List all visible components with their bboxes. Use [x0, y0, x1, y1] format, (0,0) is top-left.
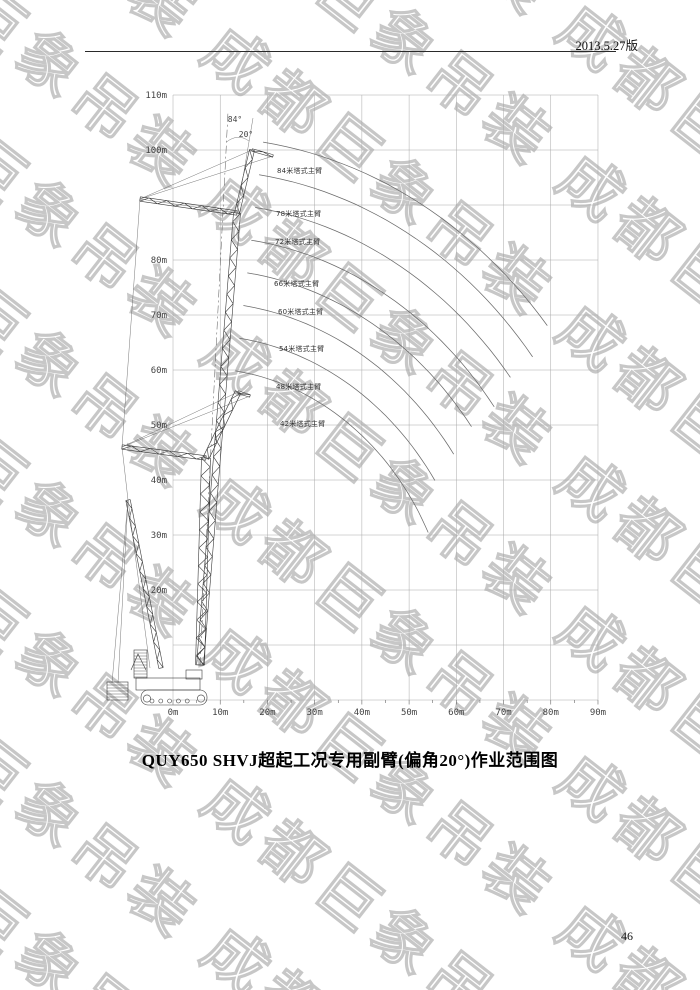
y-axis-tick-label: 80m [151, 256, 167, 266]
crane-drawing [107, 112, 273, 705]
y-axis-tick-label: 40m [151, 476, 167, 486]
track-sprocket [143, 695, 150, 702]
curve-label: 66米塔式主臂 [274, 279, 319, 288]
x-axis-tick-label: 50m [401, 708, 417, 718]
curve-labels: 84米塔式主臂78米塔式主臂72米塔式主臂66米塔式主臂60米塔式主臂54米塔式… [274, 166, 325, 428]
capacity-curve [239, 338, 435, 480]
y-axis-tick-label: 70m [151, 311, 167, 321]
capacity-curve [243, 306, 453, 455]
capacity-curves [236, 142, 548, 532]
jib-offset-angle-label: 20° [239, 130, 253, 139]
superstructure-deck [136, 678, 200, 690]
y-axis-tick-label: 60m [151, 366, 167, 376]
boom-angle-label: 84° [228, 115, 242, 124]
track-roller [185, 699, 189, 703]
lattice-beam [122, 445, 207, 460]
curve-label: 48米塔式主臂 [276, 382, 321, 391]
guy-ropes [112, 150, 273, 683]
x-axis-tick-label: 40m [354, 708, 370, 718]
lattice-beam [235, 149, 255, 213]
working-range-chart: 0m10m20m30m40m50m60m70m80m90m110m100m80m… [0, 0, 700, 990]
capacity-curve [259, 175, 532, 357]
ballast-hatch [107, 685, 128, 697]
track-roller [176, 699, 180, 703]
chart-grid [173, 95, 598, 700]
document-page: 成都巨象吊装 成都巨象吊装 成都巨象吊装 成都巨象吊装 成都巨象吊装 成都巨象吊… [0, 0, 700, 990]
axis-labels: 0m10m20m30m40m50m60m70m80m90m110m100m80m… [145, 91, 606, 718]
x-axis-tick-label: 90m [590, 708, 606, 718]
x-axis-tick-label: 30m [307, 708, 323, 718]
track-roller [159, 699, 163, 703]
x-axis-tick-label: 60m [448, 708, 464, 718]
track-sprocket [197, 695, 204, 702]
figure-caption: QUY650 SHVJ超起工况专用副臂(偏角20°)作业范围图 [0, 746, 700, 771]
x-axis-tick-label: 20m [259, 708, 275, 718]
y-axis-tick-label: 100m [145, 146, 167, 156]
y-axis-tick-label: 20m [151, 586, 167, 596]
capacity-curve [236, 371, 429, 533]
x-axis-tick-label: 80m [543, 708, 559, 718]
y-axis-tick-label: 110m [145, 91, 167, 101]
curve-label: 54米塔式主臂 [279, 344, 324, 353]
curve-label: 42米塔式主臂 [280, 419, 325, 428]
page-number: 46 [621, 929, 633, 944]
curve-label: 78米塔式主臂 [276, 209, 321, 218]
curve-label: 72米塔式主臂 [275, 237, 320, 246]
curve-label: 84米塔式主臂 [277, 166, 322, 175]
x-axis-tick-label: 10m [212, 708, 228, 718]
x-axis-tick-label: 70m [495, 708, 511, 718]
y-axis-tick-label: 50m [151, 421, 167, 431]
curve-label: 60米塔式主臂 [278, 307, 323, 316]
axis-ticks [173, 700, 598, 705]
x-axis-tick-label: 0m [168, 708, 179, 718]
boom-axis-dashdot [200, 112, 228, 665]
track-roller [168, 699, 172, 703]
counterweight-hatch [134, 653, 147, 677]
y-axis-tick-label: 30m [151, 531, 167, 541]
machinery-housing [186, 670, 202, 679]
